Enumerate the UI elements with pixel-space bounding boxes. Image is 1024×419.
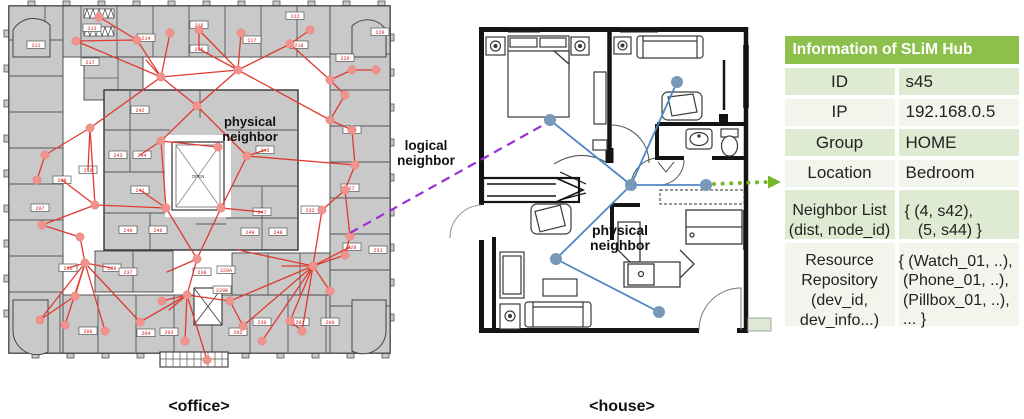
svg-text:229A: 229A (220, 268, 232, 274)
svg-text:240: 240 (123, 228, 132, 234)
svg-text:241: 241 (135, 188, 144, 194)
svg-text:200: 200 (325, 320, 334, 326)
svg-text:<office>: <office> (168, 398, 229, 415)
svg-text:222: 222 (290, 14, 299, 20)
svg-text:237: 237 (123, 270, 132, 276)
svg-text:217: 217 (85, 60, 94, 66)
svg-text:247: 247 (257, 210, 266, 216)
svg-text:neighbor: neighbor (590, 237, 650, 253)
svg-text:neighbor: neighbor (222, 129, 278, 144)
svg-text:neighbor: neighbor (397, 153, 455, 168)
svg-text:202: 202 (233, 330, 242, 336)
svg-text:238: 238 (197, 270, 206, 276)
svg-text:211: 211 (31, 43, 40, 49)
svg-text:218: 218 (294, 43, 303, 49)
svg-text:204: 204 (141, 331, 150, 337)
svg-text:220: 220 (340, 56, 349, 62)
svg-text:229B: 229B (216, 288, 228, 294)
svg-text:206: 206 (83, 329, 92, 335)
svg-text:242: 242 (135, 108, 144, 114)
svg-text:207: 207 (35, 206, 44, 212)
svg-text:logical: logical (405, 138, 448, 153)
svg-text:231: 231 (373, 248, 382, 254)
svg-text:214: 214 (141, 36, 150, 42)
svg-text:physical: physical (224, 114, 276, 129)
svg-text:230: 230 (257, 320, 266, 326)
svg-text:OPEN: OPEN (192, 174, 205, 179)
svg-text:<house>: <house> (589, 398, 655, 415)
svg-text:246: 246 (153, 228, 162, 234)
svg-text:213: 213 (87, 26, 96, 32)
svg-text:249: 249 (245, 230, 254, 236)
svg-text:physical: physical (592, 222, 648, 238)
svg-text:229: 229 (375, 30, 384, 36)
svg-text:243: 243 (113, 153, 122, 159)
svg-text:248: 248 (273, 230, 282, 236)
svg-text:232: 232 (305, 208, 314, 214)
svg-text:217: 217 (247, 38, 256, 44)
svg-text:203: 203 (164, 330, 173, 336)
